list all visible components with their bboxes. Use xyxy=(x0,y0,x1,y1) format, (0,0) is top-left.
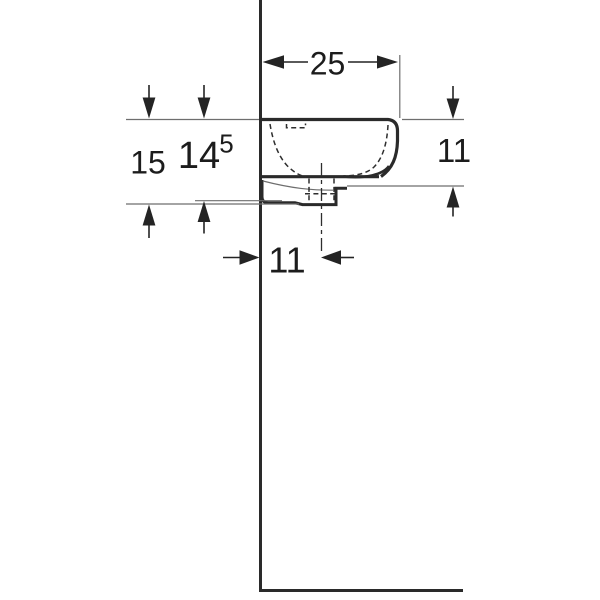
dim-15-label: 15 xyxy=(130,145,166,181)
bowl-underside-curve xyxy=(263,181,333,190)
overflow-hidden-edge xyxy=(287,124,306,128)
dim-25-label: 25 xyxy=(310,46,346,82)
dim-heights-left: 15 14 5 xyxy=(126,85,299,238)
wall-and-floor xyxy=(259,0,463,591)
dim-b11-arrow-right-icon xyxy=(240,250,260,265)
dim-height-right: 11 xyxy=(347,86,471,217)
dim-width-top: 25 xyxy=(263,46,400,119)
dim-r11-arrow-down-icon xyxy=(447,99,460,120)
dim-15-arrow-down-icon xyxy=(143,98,156,119)
dim-b11-arrow-left-icon xyxy=(321,250,341,265)
dim-offset-bottom: 11 xyxy=(223,240,354,281)
dim-145-label: 14 xyxy=(178,135,220,177)
basin-rim-and-front-edge xyxy=(262,120,398,177)
dim-145-arrow-down-icon xyxy=(198,98,211,119)
bowl-inner-front-curve xyxy=(344,125,388,176)
drawing-canvas: 25 15 14 5 11 11 xyxy=(0,0,600,600)
dim-15-arrow-up-icon xyxy=(143,205,156,226)
washbasin-dimension-drawing: 25 15 14 5 11 11 xyxy=(0,0,600,600)
washbasin-outline xyxy=(262,120,398,205)
dim-r11-arrow-up-icon xyxy=(447,187,460,208)
dim-145-superscript: 5 xyxy=(219,129,233,159)
bowl-inner-back-curve xyxy=(270,124,306,177)
dim-25-arrow-left-icon xyxy=(263,55,285,69)
dim-b11-label: 11 xyxy=(268,240,305,281)
dim-25-arrow-right-icon xyxy=(377,55,398,68)
dim-r11-label: 11 xyxy=(437,132,471,169)
